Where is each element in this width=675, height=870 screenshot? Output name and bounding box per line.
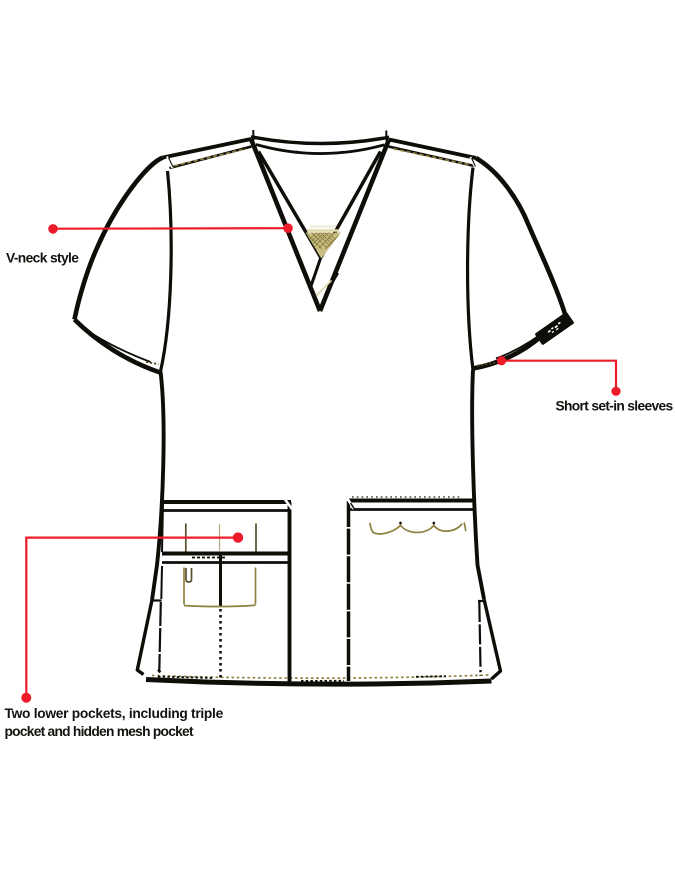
svg-text:pocket and hidden mesh pocket: pocket and hidden mesh pocket [5,724,194,739]
svg-text:V-neck style: V-neck style [6,251,79,266]
svg-text:Short set-in sleeves: Short set-in sleeves [556,399,674,414]
svg-text:Two lower pockets, including t: Two lower pockets, including triple [5,706,224,721]
